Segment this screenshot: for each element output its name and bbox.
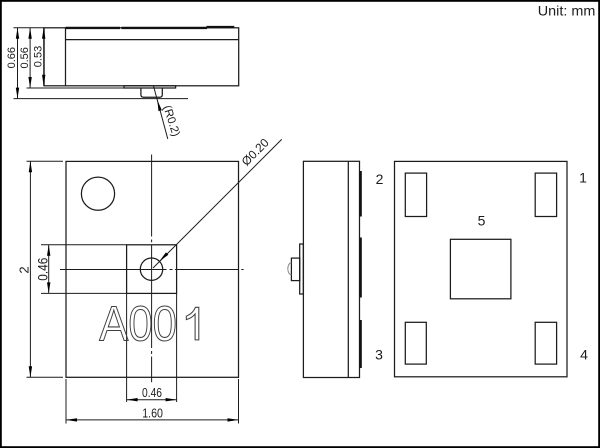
svg-text:Unit: mm: Unit: mm xyxy=(538,3,596,19)
svg-text:2: 2 xyxy=(376,171,384,187)
svg-text:0.66: 0.66 xyxy=(6,47,18,68)
svg-text:3: 3 xyxy=(375,347,383,363)
svg-text:2: 2 xyxy=(17,266,32,273)
svg-text:0.56: 0.56 xyxy=(19,47,31,68)
svg-text:0.46: 0.46 xyxy=(34,258,50,281)
svg-text:0.53: 0.53 xyxy=(33,46,45,67)
svg-text:1.60: 1.60 xyxy=(142,406,163,421)
svg-text:0.46: 0.46 xyxy=(142,385,162,400)
svg-text:A00: A00 xyxy=(99,296,177,351)
svg-text:5: 5 xyxy=(478,213,486,229)
svg-text:1: 1 xyxy=(579,170,587,186)
svg-text:4: 4 xyxy=(580,347,588,363)
